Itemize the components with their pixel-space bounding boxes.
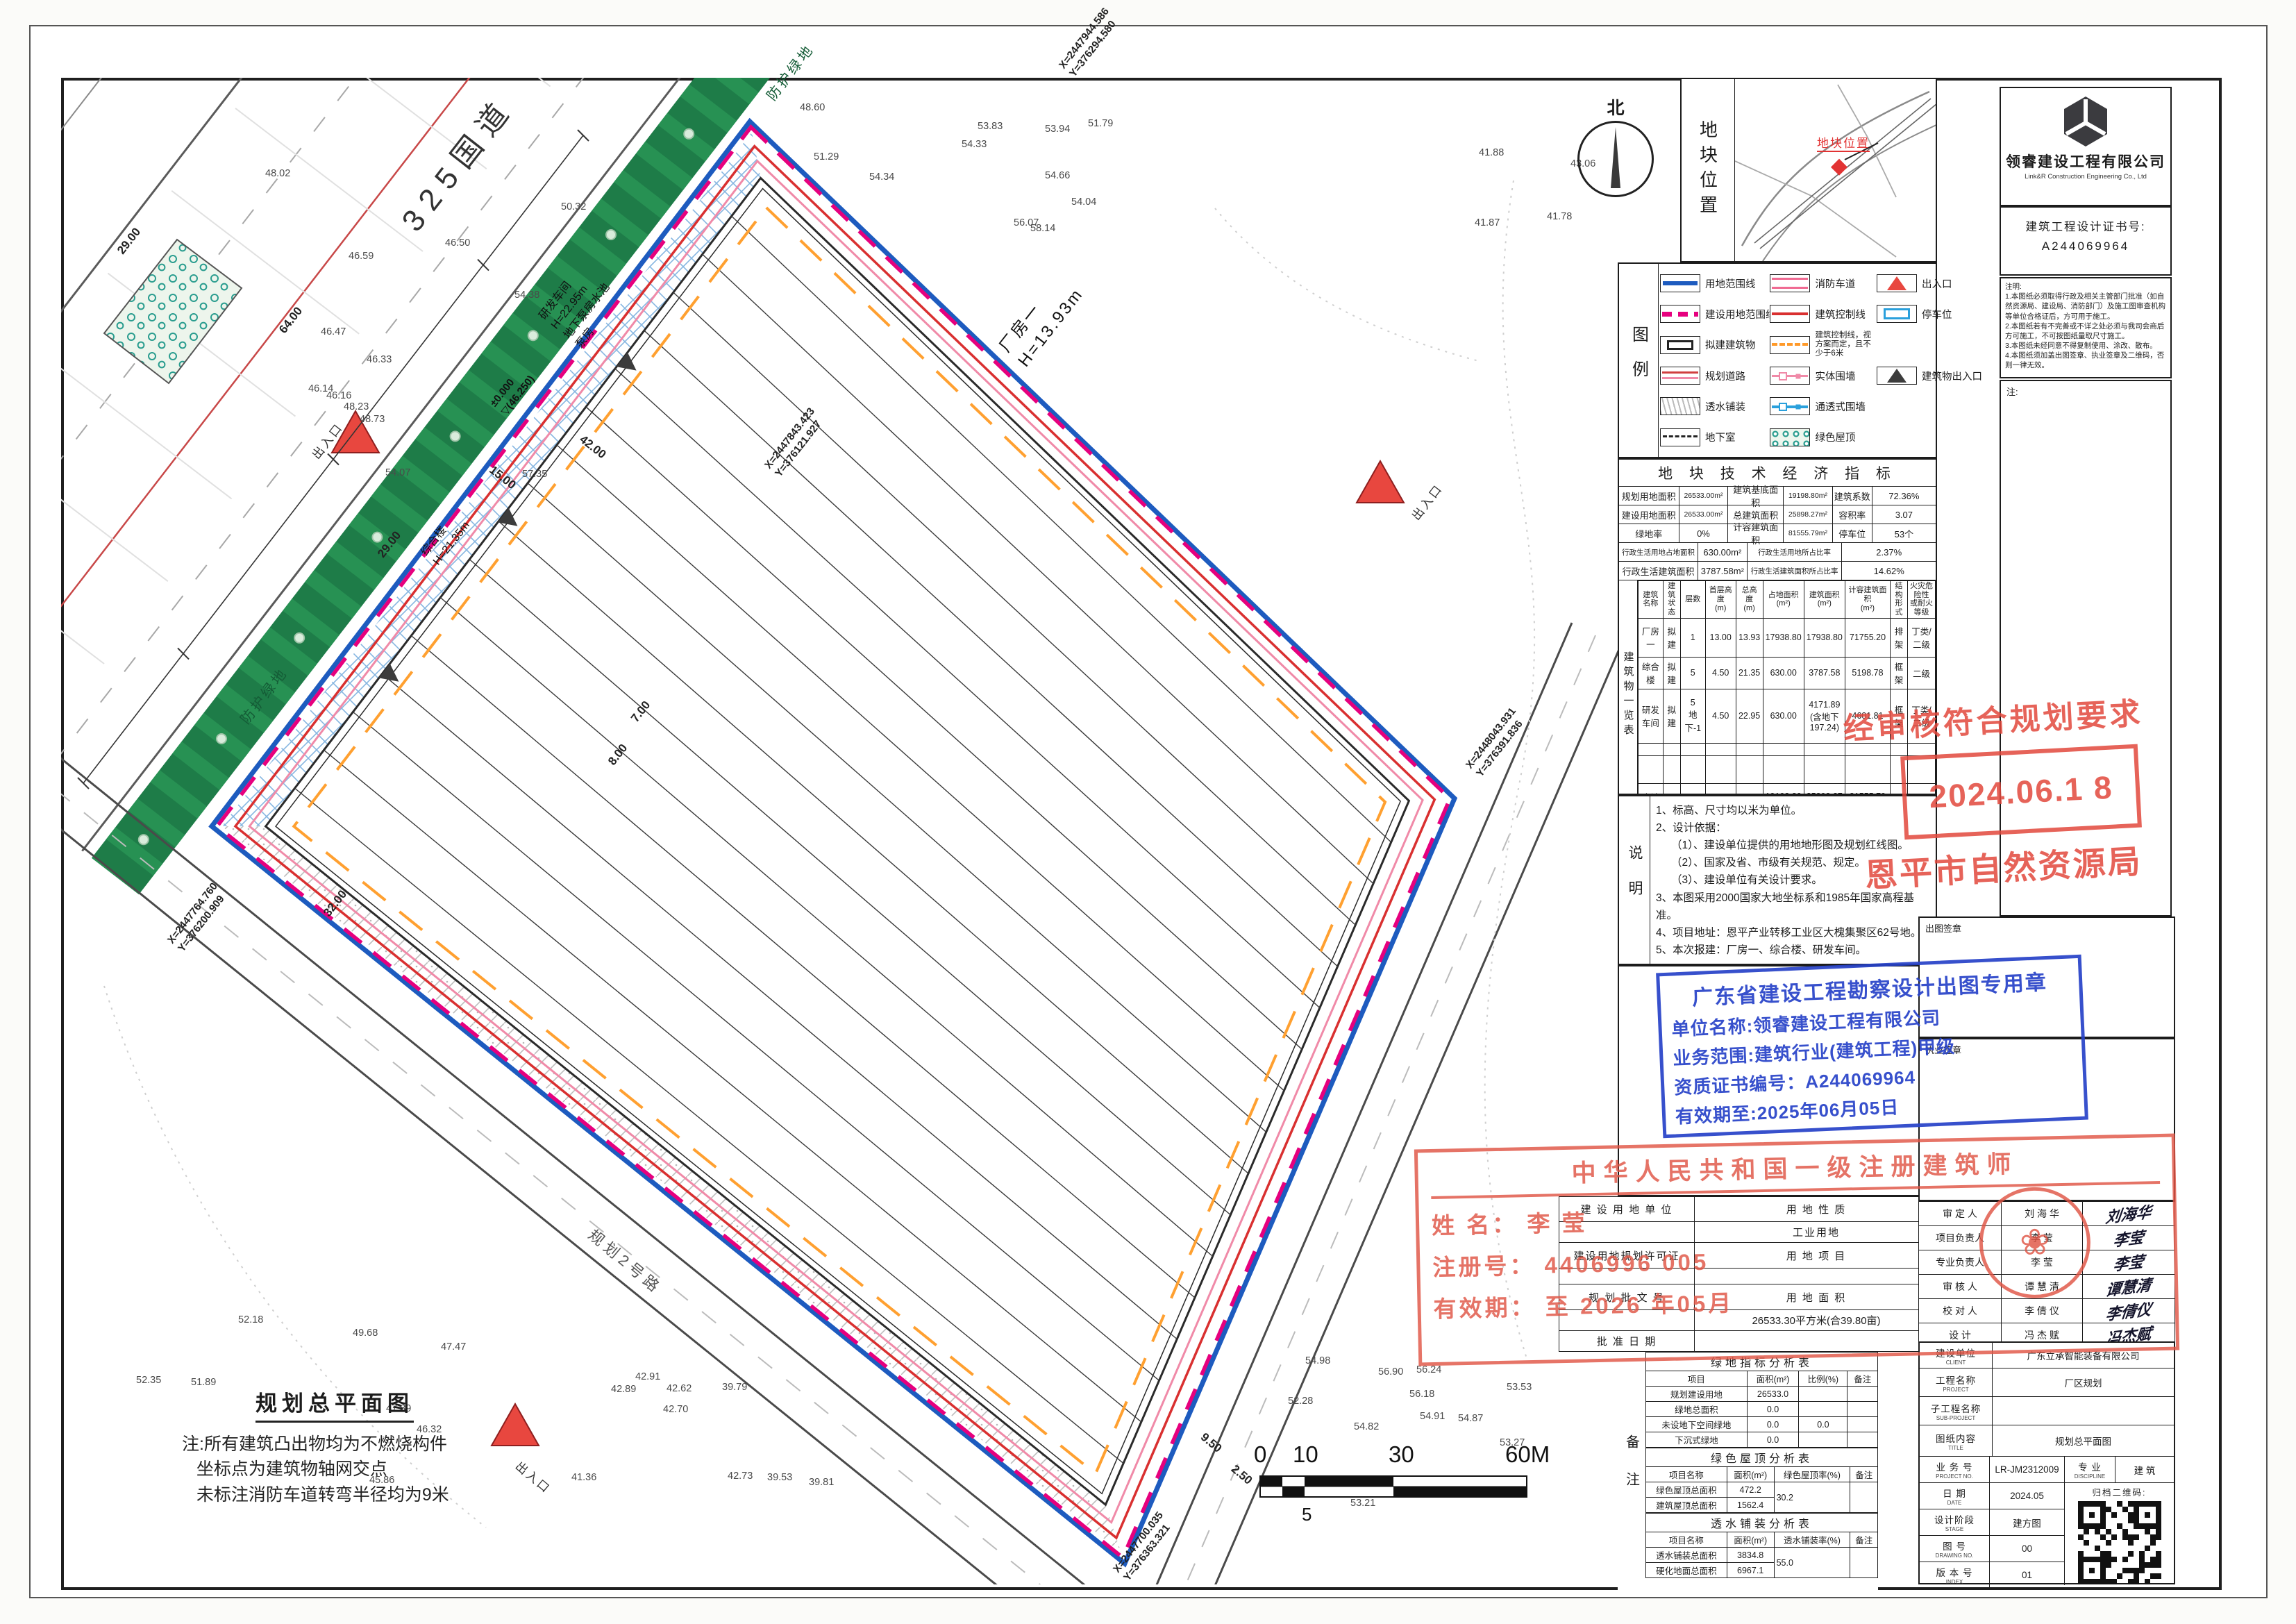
qr-cell: [2117, 1557, 2122, 1562]
qr-cell: [2095, 1534, 2100, 1540]
analysis-cell: [1799, 1387, 1847, 1402]
qr-cell: [2156, 1518, 2161, 1523]
land-value-cell: [1695, 1330, 1938, 1351]
land-use-table-wrap: 建 设 用 地 单 位用 地 性 质工业用地建设用地规划许可证用 地 项 目规 …: [1559, 1196, 1938, 1352]
qr-cell: [2117, 1534, 2122, 1540]
analysis-title-row: 透水铺装分析表: [1646, 1514, 1878, 1532]
qr-cell: [2156, 1507, 2161, 1512]
analysis-cell: [1799, 1432, 1847, 1448]
land-row: 建 设 用 地 单 位用 地 性 质: [1559, 1197, 1938, 1222]
legend-title: 图例: [1619, 264, 1659, 457]
buildings-cell: [1680, 755, 1705, 783]
buildings-cell: 4.50: [1705, 689, 1736, 743]
qr-cell: [2078, 1512, 2084, 1518]
indicator-cell: 2.37%: [1842, 543, 1936, 561]
qr-cell: [2128, 1557, 2134, 1562]
info-label-en: CLIENT: [1946, 1359, 1966, 1366]
indicator-cell: 26533.00m²: [1679, 487, 1729, 505]
qr-cell: [2078, 1507, 2084, 1512]
buildings-header-cell: 结构 形式: [1891, 581, 1908, 619]
qr-cell: [2100, 1507, 2106, 1512]
buildings-cell: [1763, 743, 1804, 755]
info-value: 2024.05: [1990, 1483, 2064, 1509]
qr-cell: [2106, 1557, 2111, 1562]
qr-cell: [2150, 1557, 2156, 1562]
signature-row: 审 定 人刘 海 华刘海华: [1919, 1202, 2175, 1226]
qr-cell: [2122, 1529, 2128, 1534]
info-label-cn: 子工程名称: [1931, 1401, 1981, 1415]
qr-cell: [2134, 1512, 2139, 1518]
qr-cell: [2111, 1512, 2117, 1518]
signature-scrawl: 李倩仪: [2104, 1297, 2153, 1325]
qr-cell: [2134, 1501, 2139, 1507]
signature-name: 李 倩 仪: [2002, 1299, 2083, 1323]
qr-cell: [2122, 1579, 2128, 1584]
qr-cell: [2122, 1540, 2128, 1546]
qr-cell: [2078, 1546, 2084, 1551]
qr-cell: [2150, 1507, 2156, 1512]
minimap-roads: [1735, 79, 1936, 261]
indicator-row: 行政生活建筑面积3787.58m²行政生活建筑面积所占比率14.62%: [1619, 562, 1936, 580]
land-value-cell: 用 地 面 积: [1695, 1284, 1938, 1309]
land-use-table: 建 设 用 地 单 位用 地 性 质工业用地建设用地规划许可证用 地 项 目规 …: [1559, 1196, 1938, 1352]
qr-cell: [2156, 1568, 2161, 1573]
buildings-cell: 丁类/二级: [1907, 689, 1935, 743]
indicator-row: 行政生活用地占地面积630.00m²行政生活用地所占比率2.37%: [1619, 543, 1936, 562]
info-value: [1993, 1397, 2174, 1425]
qr-cell: [2122, 1573, 2128, 1579]
qr-cell: [2084, 1529, 2089, 1534]
qr-cell: [2078, 1562, 2084, 1568]
buildings-header-cell: 总高度 (m): [1736, 581, 1763, 619]
signature-row: 项目负责人李 莹李莹: [1919, 1226, 2175, 1250]
qr-cell: [2089, 1573, 2095, 1579]
land-value-cell: 工业用地: [1695, 1222, 1938, 1243]
qr-cell: [2084, 1518, 2089, 1523]
buildings-cell: 5 地下-1: [1680, 689, 1705, 743]
qr-cell: [2145, 1512, 2150, 1518]
signature-role: 审 定 人: [1919, 1202, 2002, 1226]
qr-cell: [2128, 1573, 2134, 1579]
info-label-cn: 版 本 号: [1936, 1565, 1972, 1579]
qr-cell: [2145, 1562, 2150, 1568]
qr-cell: [2111, 1573, 2117, 1579]
signature-scrawl: 刘海华: [2104, 1200, 2153, 1228]
qr-cell: [2084, 1540, 2089, 1546]
indicator-cell: 计容建筑面积: [1728, 524, 1784, 542]
remark-side-label: 备注: [1618, 1352, 1645, 1591]
company-name: 领睿建设工程有限公司: [2001, 151, 2170, 171]
info-label: 图 号DRAWING NO.: [1920, 1536, 1990, 1562]
qr-cell: [2100, 1512, 2106, 1518]
legend-swatch-redline-icon: [1770, 305, 1810, 323]
info-row: 图纸内容TITLE规划总平面图: [1920, 1425, 2174, 1457]
qr-cell: [2150, 1546, 2156, 1551]
buildings-cell: [1639, 755, 1664, 783]
qr-cell: [2078, 1573, 2084, 1579]
buildings-cell: 5: [1680, 657, 1705, 689]
legend-item: [1877, 331, 1982, 359]
qr-cell: [2150, 1579, 2156, 1584]
legend-panel: 图例 用地范围线建设用地范围线拟建建筑物规划道路透水铺装地下室消防车道建筑控制线…: [1618, 262, 1937, 458]
qr-cell: [2139, 1546, 2145, 1551]
qr-cell: [2078, 1579, 2084, 1584]
qr-cell: [2089, 1557, 2095, 1562]
analysis-cell: [1847, 1417, 1878, 1432]
indicator-cell: 3787.58m²: [1698, 562, 1748, 580]
indicator-cell: 行政生活建筑面积所占比率: [1748, 562, 1843, 580]
info-row: 建设单位CLIENT广东立承智能装备有限公司: [1920, 1343, 2174, 1368]
info-label-en: SUB-PROJECT: [1936, 1415, 1975, 1421]
qr-cell: [2100, 1523, 2106, 1529]
qr-cell: [2139, 1562, 2145, 1568]
buildings-cell: 排架: [1891, 618, 1908, 657]
qr-cell: [2078, 1551, 2084, 1557]
qr-cell: [2156, 1540, 2161, 1546]
plot-seal-label: 出图签章: [1920, 918, 2174, 935]
indicator-cell: 建筑基底面积: [1728, 487, 1784, 505]
buildings-cell: [1680, 743, 1705, 755]
legend-item: 消防车道: [1770, 269, 1874, 297]
buildings-cell: 框架: [1891, 657, 1908, 689]
qr-cell: [2111, 1579, 2117, 1584]
blank-panel: [1618, 965, 1937, 1196]
qr-cell: [2145, 1551, 2150, 1557]
legend-item-label: 用地范围线: [1705, 276, 1756, 291]
qr-cell: [2095, 1512, 2100, 1518]
qr-cell: [2156, 1534, 2161, 1540]
qr-cell: [2134, 1540, 2139, 1546]
signature-name: 谭 慧 清: [2002, 1275, 2083, 1299]
analysis-cell: [1847, 1432, 1878, 1448]
info-value: LR-JM2312009: [1990, 1457, 2064, 1482]
signature-scrawl: 李莹: [2112, 1225, 2145, 1251]
qr-cell: [2139, 1518, 2145, 1523]
note-line: （2）、国家及省、市级有关规范、规定。: [1656, 854, 1932, 871]
signature-row: 校 对 人李 倩 仪李倩仪: [1919, 1299, 2175, 1323]
qr-cell: [2078, 1568, 2084, 1573]
analysis-header-cell: 备注: [1850, 1467, 1878, 1482]
legend-item-label: 停车位: [1922, 307, 1952, 321]
buildings-cell: 框架: [1891, 689, 1908, 743]
north-compass-icon: 北: [1570, 94, 1661, 197]
info-label: 子工程名称SUB-PROJECT: [1920, 1397, 1993, 1425]
qr-cell: [2100, 1557, 2106, 1562]
buildings-cell: [1736, 743, 1763, 755]
qr-cell: [2111, 1523, 2117, 1529]
qr-cell: [2089, 1507, 2095, 1512]
signature-name: 李 莹: [2002, 1250, 2083, 1275]
indicator-cell: 容积率: [1833, 505, 1872, 524]
info-label-cn: 业 务 号: [1936, 1459, 1972, 1473]
qr-cell: [2117, 1568, 2122, 1573]
analysis-header-cell: 比例(%): [1799, 1371, 1847, 1387]
legend-item-label: 消防车道: [1815, 276, 1855, 291]
notes-panel: 说明 1、标高、尺寸均以米为单位。2、设计依据：（1）、建设单位提供的用地地形图…: [1618, 795, 1937, 965]
analysis-cell: 6967.1: [1727, 1563, 1774, 1578]
qr-cell: [2089, 1579, 2095, 1584]
info-label-en: DATE: [1947, 1500, 1962, 1506]
qr-cell: [2156, 1562, 2161, 1568]
qr-cell: [2145, 1573, 2150, 1579]
qr-cell: [2095, 1523, 2100, 1529]
plot-seal-box: 出图签章: [1918, 916, 2175, 1038]
qr-cell: [2122, 1501, 2128, 1507]
buildings-cell: 拟建: [1663, 689, 1680, 743]
note-line: （1）、建设单位提供的用地地形图及规划红线图。: [1656, 837, 1932, 854]
legend-item: [1877, 392, 1982, 420]
buildings-header-cell: 占地面积 (m²): [1763, 581, 1804, 619]
info-value: 建方图: [1990, 1509, 2064, 1535]
analysis-row: 透水铺装总面积3834.855.0: [1646, 1548, 1878, 1563]
qr-cell: [2095, 1546, 2100, 1551]
qr-cell: [2139, 1540, 2145, 1546]
notes-side-label: 说明: [1619, 796, 1650, 964]
qr-cell: [2134, 1557, 2139, 1562]
link-r-logo-icon: [2058, 94, 2113, 148]
qr-cell: [2128, 1562, 2134, 1568]
qr-cell: [2145, 1546, 2150, 1551]
analysis-header-cell: 项目名称: [1646, 1532, 1727, 1548]
analysis-header-cell: 面积(m²): [1747, 1371, 1799, 1387]
qr-cell: [2128, 1551, 2134, 1557]
analysis-note-cell: [1850, 1548, 1878, 1578]
info-label: 专 业DISCIPLINE: [2065, 1457, 2115, 1482]
buildings-header-cell: 建筑面积 (m²): [1804, 581, 1845, 619]
info-label-cn: 工程名称: [1936, 1373, 1976, 1387]
qr-cell: [2145, 1518, 2150, 1523]
notice-line: 1.本图纸必须取得行政及相关主管部门批准（如自然资源局、建设局、消防部门）及施工…: [2005, 292, 2166, 321]
qr-cell: [2095, 1579, 2100, 1584]
indicators-panel: 地 块 技 术 经 济 指 标 规划用地面积26533.00m²建筑基底面积19…: [1618, 458, 1937, 795]
legend-item-label: 建设用地范围线: [1705, 307, 1776, 321]
qr-cell: [2134, 1568, 2139, 1573]
qr-cell: [2089, 1518, 2095, 1523]
qr-cell: [2122, 1562, 2128, 1568]
note-line: 5、本次报建：厂房一、综合楼、研发车间。: [1656, 941, 1932, 959]
signature-autograph: 李倩仪: [2083, 1299, 2175, 1323]
analysis-row: 规划建设用地26533.0: [1646, 1387, 1878, 1402]
analysis-header-row: 项目面积(m²)比例(%)备注: [1646, 1371, 1878, 1387]
qr-cell: [2156, 1501, 2161, 1507]
signature-row: 专业负责人李 莹李莹: [1919, 1250, 2175, 1275]
legend-swatch-orangedash-icon: [1770, 336, 1810, 354]
qr-cell: [2156, 1573, 2161, 1579]
analysis-rate-cell: 30.2: [1774, 1482, 1850, 1513]
info-value: 规划总平面图: [1993, 1425, 2174, 1456]
buildings-cell: 3787.58: [1804, 657, 1845, 689]
indicator-cell: 14.62%: [1842, 562, 1936, 580]
signature-autograph: 谭慧清: [2083, 1275, 2175, 1299]
qr-cell: [2128, 1529, 2134, 1534]
indicators-table: 规划用地面积26533.00m²建筑基底面积19198.80m²建筑系数72.3…: [1619, 487, 1936, 580]
signature-name: 刘 海 华: [2002, 1202, 2083, 1226]
qr-cell: [2145, 1507, 2150, 1512]
qr-cell: [2089, 1501, 2095, 1507]
qr-cell: [2156, 1579, 2161, 1584]
note-line: 1、标高、尺寸均以米为单位。: [1656, 802, 1932, 819]
cert-number: A244069964: [2001, 240, 2170, 253]
qr-area: 归档二维码:: [2065, 1485, 2174, 1584]
qr-cell: [2139, 1551, 2145, 1557]
info-label-cn: 图纸内容: [1936, 1431, 1976, 1445]
analysis-header-cell: 面积(m²): [1727, 1467, 1774, 1482]
qr-cell: [2095, 1551, 2100, 1557]
indicator-cell: 行政生活用地占地面积: [1619, 543, 1698, 561]
indicator-cell: 建筑系数: [1833, 487, 1872, 505]
legend-swatch-dashblk-icon: [1660, 428, 1700, 446]
analysis-row: 绿地总面积0.0: [1646, 1402, 1878, 1417]
buildings-cell: 4601.81: [1845, 689, 1890, 743]
qr-cell: [2084, 1562, 2089, 1568]
qr-cell: [2100, 1501, 2106, 1507]
legend-item: 建设用地范围线: [1660, 300, 1767, 328]
analysis-row: 下沉式绿地0.0: [1646, 1432, 1878, 1448]
qr-cell: [2150, 1573, 2156, 1579]
info-row: 日 期DATE2024.05: [1920, 1483, 2064, 1509]
buildings-cell: [1705, 755, 1736, 783]
qr-cell: [2139, 1534, 2145, 1540]
land-value-cell: 用 地 项 目: [1695, 1243, 1938, 1268]
buildings-cell: 4.50: [1705, 657, 1736, 689]
legend-item-label: 通透式围墙: [1815, 399, 1866, 414]
qr-cell: [2117, 1523, 2122, 1529]
qr-cell: [2089, 1512, 2095, 1518]
indicator-cell: 绿地率: [1619, 524, 1679, 542]
buildings-cell: [1705, 743, 1736, 755]
buildings-header-cell: 计容建筑面积 (m²): [1845, 581, 1890, 619]
qr-cell: [2111, 1546, 2117, 1551]
qr-cell: [2111, 1529, 2117, 1534]
legend-item-label: 建筑控制线: [1815, 307, 1866, 321]
qr-cell: [2100, 1529, 2106, 1534]
legend-item: 绿色屋顶: [1770, 424, 1874, 451]
remark-panel: 备注 绿地指标分析表项目面积(m²)比例(%)备注规划建设用地26533.0绿地…: [1618, 1352, 1937, 1591]
info-label-cn: 建设单位: [1936, 1346, 1976, 1359]
info-label: 版 本 号INDEX: [1920, 1562, 1990, 1588]
qr-cell: [2117, 1507, 2122, 1512]
land-label-cell: 批 准 日 期: [1559, 1330, 1695, 1351]
qr-cell: [2089, 1540, 2095, 1546]
practice-seal-label: 执业签章: [1920, 1039, 2174, 1056]
qr-cell: [2106, 1562, 2111, 1568]
compass-needle-icon: [1611, 127, 1620, 188]
buildings-cell: [1639, 743, 1664, 755]
qr-cell: [2134, 1579, 2139, 1584]
legend-swatch-wallopen-icon: [1770, 397, 1810, 415]
signature-role: 专业负责人: [1919, 1250, 2002, 1275]
qr-cell: [2134, 1523, 2139, 1529]
qr-cell: [2117, 1551, 2122, 1557]
signature-autograph: 李莹: [2083, 1250, 2175, 1275]
analysis-cell: 下沉式绿地: [1646, 1432, 1748, 1448]
qr-cell: [2122, 1507, 2128, 1512]
buildings-cell: [1891, 743, 1908, 755]
info-label: 图纸内容TITLE: [1920, 1425, 1993, 1456]
info-label-en: DISCIPLINE: [2075, 1473, 2105, 1480]
analysis-header-cell: 备注: [1850, 1532, 1878, 1548]
qr-cell: [2117, 1546, 2122, 1551]
analysis-cell: 建筑屋顶总面积: [1646, 1498, 1727, 1513]
info-value: 00: [1990, 1536, 2064, 1562]
qr-cell: [2134, 1573, 2139, 1579]
qr-cell: [2089, 1546, 2095, 1551]
buildings-cell: [1891, 755, 1908, 783]
archive-qr-code[interactable]: [2078, 1501, 2161, 1584]
site-marker-icon: [1831, 159, 1847, 176]
qr-cell: [2150, 1529, 2156, 1534]
qr-cell: [2111, 1557, 2117, 1562]
location-minimap[interactable]: 地块位置: [1735, 79, 1936, 261]
qr-cell: [2100, 1568, 2106, 1573]
qr-cell: [2106, 1501, 2111, 1507]
analysis-cell: 3834.8: [1727, 1548, 1774, 1563]
signature-autograph: 刘海华: [2083, 1202, 2175, 1226]
signature-name: 李 莹: [2002, 1226, 2083, 1250]
note-line: （3）、建设单位有关设计要求。: [1656, 871, 1932, 889]
signature-role: 审 核 人: [1919, 1275, 2002, 1299]
qr-cell: [2084, 1523, 2089, 1529]
info-label-cn: 专 业: [2078, 1459, 2102, 1473]
analysis-cell: 未设地下空间绿地: [1646, 1417, 1748, 1432]
qr-cell: [2117, 1501, 2122, 1507]
note-line: 3、本图采用2000国家大地坐标系和1985年国家高程基准。: [1656, 889, 1932, 924]
buildings-cell: [1845, 755, 1890, 783]
qr-cell: [2145, 1534, 2150, 1540]
land-row: 规 划 批 文 号用 地 面 积: [1559, 1284, 1938, 1309]
qr-cell: [2122, 1546, 2128, 1551]
qr-cell: [2095, 1568, 2100, 1573]
indicator-cell: 25898.27m²: [1784, 505, 1833, 524]
qr-cell: [2117, 1529, 2122, 1534]
analysis-cell: 0.0: [1747, 1417, 1799, 1432]
info-value: 厂区规划: [1993, 1368, 2174, 1396]
qr-cell: [2145, 1579, 2150, 1584]
buildings-cell: 拟建: [1663, 618, 1680, 657]
legend-item: 地下室: [1660, 424, 1767, 451]
qr-cell: [2134, 1518, 2139, 1523]
notice-title: 注明:: [2005, 282, 2166, 292]
qr-cell: [2078, 1529, 2084, 1534]
buildings-cell: [1804, 755, 1845, 783]
qr-cell: [2139, 1557, 2145, 1562]
qr-cell: [2150, 1562, 2156, 1568]
analysis-header-cell: 项目: [1646, 1371, 1748, 1387]
minimap-site-label: 地块位置: [1817, 133, 1870, 152]
land-row: 批 准 日 期: [1559, 1330, 1938, 1351]
plan-notes: 注:所有建筑凸出物均为不燃烧构件 坐标点为建筑物轴网交点 未标注消防车道转弯半径…: [182, 1432, 449, 1507]
info-lower-right: 专 业DISCIPLINE建 筑归档二维码:: [2065, 1457, 2174, 1585]
qr-cell: [2078, 1518, 2084, 1523]
info-value: 建 筑: [2115, 1457, 2174, 1482]
qr-cell: [2139, 1501, 2145, 1507]
info-table: 建设单位CLIENT广东立承智能装备有限公司工程名称PROJECT厂区规划子工程…: [1918, 1341, 2175, 1584]
analysis-header-row: 项目名称面积(m²)绿色屋顶率(%)备注: [1646, 1467, 1878, 1482]
analysis-cell: 1562.4: [1727, 1498, 1774, 1513]
land-value-cell: 用 地 性 质: [1695, 1197, 1938, 1222]
qr-cell: [2111, 1562, 2117, 1568]
indicator-cell: 建设用地面积: [1619, 505, 1679, 524]
qr-cell: [2156, 1551, 2161, 1557]
qr-cell: [2084, 1557, 2089, 1562]
qr-cell: [2128, 1546, 2134, 1551]
qr-cell: [2106, 1573, 2111, 1579]
legend-item: [1877, 424, 1982, 451]
cert-box: 建筑工程设计证书号: A244069964: [2000, 206, 2172, 276]
indicator-cell: 72.36%: [1872, 487, 1936, 505]
qr-cell: [2122, 1551, 2128, 1557]
analysis-title: 透水铺装分析表: [1646, 1514, 1878, 1532]
